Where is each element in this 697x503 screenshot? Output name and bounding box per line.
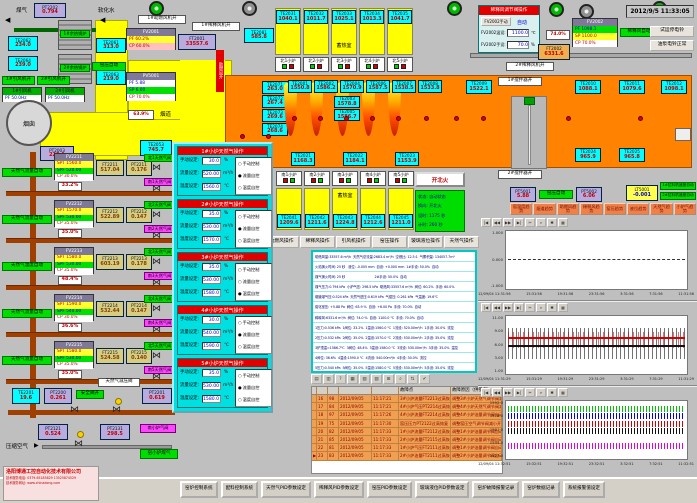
temp-set-label: 温度设定: (180, 397, 199, 401)
flow-set-input[interactable]: 530.00 (202, 276, 221, 284)
ytick: 6.00 (495, 342, 503, 347)
loop-mode-label: 天然气流量自动 (2, 356, 52, 365)
pv5001-box: PV5001 PF 5.88 SP 6.00 CP 70.0% (126, 72, 176, 101)
unit-label: % (531, 42, 535, 47)
burner-status[interactable]: 南4小炉 (360, 171, 386, 186)
alarm-row[interactable]: ▶23 832012/09/05 11:17:332#小炉油量FT2111过高恢… (312, 452, 502, 460)
valve-icon[interactable]: ⋈ (74, 440, 83, 449)
ops-button[interactable]: 窑压操作 (372, 236, 407, 248)
thermo-dot (454, 116, 459, 121)
boiler-1-label: 1#余热锅炉 (60, 30, 90, 38)
xtick: 19:31:56 (557, 292, 573, 296)
chart-toolbar-icon[interactable]: ▶| (514, 388, 524, 397)
alarm-table-rows: 16 982012/09/05 11:17:213#小炉流量FT2213过高恢复… (311, 395, 503, 462)
thermo-dot (566, 116, 571, 121)
chart-toolbar-icon[interactable]: ⌕ (536, 218, 546, 227)
flow-set-input[interactable]: 520.00 (202, 170, 221, 178)
hand-set-input[interactable]: 70.0 (507, 41, 529, 49)
radio-flow[interactable]: ●流量自控 (238, 227, 271, 231)
radio-temp[interactable]: ○温度自控 (238, 345, 271, 349)
alarm-row[interactable]: 20 822012/09/05 11:17:331#小炉流量FT2112过高恢复… (312, 428, 502, 436)
trend-button[interactable]: 烟道趋势 (533, 203, 555, 215)
toolbar-icon[interactable]: ▧ (359, 374, 370, 384)
data-row: 煤气压力:0.794 kPa 小炉气压: 298.5 kPa 助燃风:33557… (313, 282, 475, 292)
fan-icon (549, 2, 564, 17)
chart2-xticks: 12/09/04 11:31:2915:31:2919:31:2923:31:2… (478, 377, 694, 381)
loop-ft-box: FT2213603.19 (96, 254, 124, 270)
loop-pt-box: PT22150.140 (126, 348, 152, 364)
manual-set-label: 手动设定: (180, 318, 199, 322)
flow-arrow-icon: ◀ (100, 16, 105, 24)
nav-button[interactable]: 窑压PID参数设定 (367, 481, 412, 498)
te-box: TE20211168.3 (291, 152, 315, 166)
pt5002-box: PT50026.06 (576, 187, 602, 202)
valve-icon[interactable]: ⋈ (152, 211, 161, 220)
chart-toolbar-icon[interactable]: |◀ (481, 303, 491, 312)
top-te-row: TE20011550.8TE20021586.2TE20041570.9TE20… (288, 80, 442, 93)
chart-toolbar-icon[interactable]: ◀◀ (492, 218, 502, 227)
chart-toolbar-icon[interactable]: ◀◀ (492, 303, 502, 312)
process-data-panel: 助燃风量:33557.6 m³/h 天然气总流量:2683.4 m³/h 空燃比… (311, 250, 477, 373)
reversal-status-panel: 状态: 自动状态换向: 开北火设时: 1175 秒计时: 260 秒 (415, 190, 465, 232)
kiln-auto-label: 窑压自动 (539, 190, 573, 199)
pt2121-box: PT21210.524 (38, 424, 68, 440)
burner-status[interactable]: 北5小炉 (387, 57, 413, 72)
flow-set-label: 流量设定: (180, 331, 199, 335)
valve-icon[interactable]: ⋈ (112, 406, 121, 415)
valve-icon[interactable]: ⋈ (152, 185, 161, 194)
temp-set-label: 温度设定: (180, 344, 199, 348)
loop-pipe (6, 332, 172, 337)
chart3-band-green (508, 406, 685, 412)
data-row: 5压力:0.540 kPa 5阀位: 35.0% 5温设:1580.0 ℃ 5流… (313, 363, 475, 373)
toolbar-icon[interactable]: ▦ (347, 374, 358, 384)
chart-toolbar-icon[interactable]: |◀ (481, 218, 491, 227)
te2201-box: TE220119.6 (12, 388, 40, 404)
valve-icon[interactable]: ⋈ (152, 258, 161, 267)
burner-gas-panel: 1#小炉天然气操作 手动设定: 30.0 % 流量设定: 520.00 m³/h… (177, 146, 268, 196)
te2009-box: TE20091522.1 (466, 80, 492, 94)
chart2-toolbar: |◀◀◀▶▶▶|✂⌕✱▦ (481, 303, 568, 312)
loop-pt-box: PT22140.147 (126, 301, 152, 317)
data-row: 2压力:0.532 kPa 2阀位: 35.0% 2温设:1570.0 ℃ 2流… (313, 333, 475, 343)
south-burner-row: 南1小炉 南2小炉 南3小炉 南4小炉 南5小炉 (276, 171, 414, 186)
unit-label: ℃ (224, 397, 229, 401)
fv2002-manual-button[interactable]: FV2002手动 (481, 17, 511, 26)
loop-north-valve-label: 北4天然气阀 (144, 295, 175, 303)
ytick: 11.00 (492, 315, 503, 320)
toolbar-icon[interactable]: ⇅ (407, 374, 418, 384)
gas-loop: 天然气流量自动 FV2212 SPT 1570.0 SPF 530.00 CP … (0, 199, 175, 246)
ytick: 1578.0 (490, 413, 503, 418)
alarm-row[interactable]: 17 842012/09/05 11:17:214#小炉气压PT2214过高恢复… (312, 403, 502, 411)
panel-title: 5#小炉天然气操作 (178, 359, 267, 367)
te2081-box: TE2081585.8 (244, 28, 274, 43)
separator (478, 300, 697, 302)
xtick: 7:32:51 (649, 462, 663, 466)
ytick: 3.00 (495, 355, 503, 360)
xtick: 15:31:29 (526, 377, 542, 381)
chart3-plot (505, 400, 688, 460)
chart1-toolbar: |◀◀◀▶▶▶|✂⌕✱▦ (481, 218, 568, 227)
chart-toolbar-icon[interactable]: ▶▶ (503, 218, 513, 227)
alarm-table-filler (311, 461, 503, 474)
trend-button[interactable]: 天然气趋势 (650, 203, 672, 215)
trend-button[interactable]: 液位趋势 (627, 203, 649, 215)
chart-toolbar-icon[interactable]: ◀◀ (492, 388, 502, 397)
loop-valve-pos: 35.0% (58, 229, 82, 238)
xtick: 3:31:56 (620, 292, 634, 296)
radio-manual[interactable]: ○手动控制 (238, 268, 271, 272)
radio-flow[interactable]: ○流量自控 (238, 280, 271, 284)
flow-set-label: 流量设定: (180, 172, 199, 176)
toolbar-icon[interactable]: ? (335, 374, 346, 384)
trend-button[interactable]: 稀释风趋势 (580, 203, 602, 215)
burner-status[interactable]: 北4小炉 (359, 57, 385, 72)
valve-icon[interactable]: ⋈ (152, 373, 161, 382)
trend-button[interactable]: 小炉气趋势 (674, 203, 696, 215)
valve-icon[interactable]: ⋈ (152, 164, 161, 173)
burner-gas-panel: 4#小炉天然气操作 手动设定: 30.0 % 流量设定: 540.00 m³/h… (177, 305, 268, 355)
alarm-toolbar: ▤▥?▦▧▨⊞⌕⇅✔ (311, 374, 430, 384)
nav-button[interactable]: 窑炉数据记录 (522, 481, 560, 498)
temp-set-input[interactable]: 1580.0 (202, 289, 221, 297)
ytick: 9.00 (495, 328, 503, 333)
unit-label: % (224, 212, 228, 216)
data-row: 稀释风:6331.6 m³/h 阀位: 74.0 % 自设: 1100.0 ℃ … (313, 313, 475, 323)
dilution1-on-label: 1#稀释风机开 (192, 22, 240, 31)
te2010-box: TE20101088.1 (575, 80, 601, 94)
burner-gas-popup[interactable]: 1#小炉天然气操作 手动设定: 30.0 % 流量设定: 520.00 m³/h… (172, 142, 273, 413)
toolbar-icon[interactable]: ⌕ (395, 374, 406, 384)
xtick: 15:31:56 (526, 292, 542, 296)
pump-bell-button[interactable]: 油泵电铃正常 (650, 40, 694, 51)
te2061-box: TE2061313.0 (96, 38, 126, 53)
chart1-plot (505, 230, 688, 290)
valve-icon[interactable]: ⋈ (152, 232, 161, 241)
burner-status[interactable]: 南5小炉 (388, 171, 414, 186)
data-row: 烟道煤气压:0.524 kPa 天然气进压:0.619 kPa 气窑压: 0.2… (313, 292, 475, 302)
loop-pipe (6, 285, 172, 290)
xtick: 7:31:56 (649, 292, 663, 296)
temp-set-input[interactable]: 1570.0 (202, 236, 221, 244)
panel-title: 1#小炉天然气操作 (178, 147, 267, 155)
unit-label: m³/h (223, 384, 233, 388)
idfan1-on-label: 1#引风机开 (2, 76, 35, 85)
loop-ft-box: FT2211517.04 (96, 160, 124, 176)
radio-flow[interactable]: ●流量自控 (238, 333, 271, 337)
te2012-box: TE20121098.1 (661, 80, 687, 94)
bottom-buttons-row: 窑炉控制系统配料控制系统天然气PID参数设定稀释风PID参数设定窑压PID参数设… (180, 481, 605, 498)
valve-icon[interactable]: ⋈ (70, 406, 79, 415)
idfan1-box: 1#引风机 PF 50.0Hz (2, 87, 42, 102)
nav-button[interactable]: 天然气PID参数设定 (261, 481, 311, 498)
te-box: TE20221184.1 (343, 152, 367, 166)
chart-toolbar-icon[interactable]: ✱ (547, 218, 557, 227)
south-small-gas-label: 南小炉气阀 (140, 424, 176, 433)
nav-button[interactable]: 配料控制系统 (221, 481, 259, 498)
loop-mode-label: 天然气流量自动 (2, 215, 52, 224)
te-box: TE20011550.8 (288, 80, 312, 93)
burner-status[interactable]: 北1小炉 (275, 57, 301, 72)
temp-set-label: 温度设定: (180, 185, 199, 189)
status-line: 计时: 260 秒 (418, 223, 462, 227)
chart-toolbar-icon[interactable]: ⌕ (536, 388, 546, 397)
loop-valve-pos: 35.0% (58, 370, 82, 379)
temp-set-input[interactable]: 1560.0 (202, 183, 221, 191)
data-row: 4阀位: 36.6% 4温设:1590.0 ℃ 4流设: 540.00m³/h … (313, 353, 475, 363)
manual-set-label: 手动设定: (180, 159, 199, 163)
chart-toolbar-icon[interactable]: ⌕ (536, 303, 546, 312)
flow-set-input[interactable]: 530.00 (202, 223, 221, 231)
xtick: 11:32:51 (678, 462, 694, 466)
pt5001-box: PT50015.88 (510, 187, 536, 202)
loop-pid-box: FV2211 SPT 1560.0 SPF 520.00 CP 30.0% (54, 153, 94, 180)
loop-ft-box: FT2212522.89 (96, 207, 124, 223)
flow-set-input[interactable]: 530.00 (202, 382, 221, 390)
thermo-dot (344, 116, 349, 121)
loop-mode-label: 天然气流量自动 (2, 309, 52, 318)
panel-title: 3#小炉天然气操作 (178, 253, 267, 261)
fire-direction-button[interactable]: 开北火 (415, 172, 465, 187)
data-row: 火焰换火时间: 25 秒 液位: -0.005 mm 自设: +0.000 mm… (313, 262, 475, 272)
loop-pipe (6, 191, 172, 196)
chart-toolbar-icon[interactable]: ▦ (558, 388, 568, 397)
puller1-auto-label: 1#拉料机速度自动 (660, 182, 696, 190)
loop-pt-box: PT22130.178 (126, 254, 152, 270)
nav-button[interactable]: 系统报警值设定 (563, 481, 605, 498)
alarm-row[interactable]: 19 752012/09/05 11:17:30窑压压力PT2122过高恢复 调… (312, 420, 502, 428)
xtick: 11:31:56 (678, 292, 694, 296)
regen-label-north: 蓄热室 (275, 42, 413, 49)
ytick: -1.000 (491, 283, 503, 288)
manual-set-input[interactable]: 30.0 (202, 157, 221, 165)
burner-status[interactable]: 北3小炉 (331, 57, 357, 72)
chart-toolbar-icon[interactable]: ▦ (558, 218, 568, 227)
chart-toolbar-icon[interactable]: ✱ (547, 303, 557, 312)
manual-set-label: 手动设定: (180, 265, 199, 269)
burner-status[interactable]: 北2小炉 (303, 57, 329, 72)
gas-reducer-label: 天然气减压阀 (98, 378, 140, 387)
gas-loop: 天然气流量自动 FV2214 SPT 1590.0 SPF 540.00 CP … (0, 293, 175, 340)
data-row: 煤气换火时间: 25 秒 2#手设: 50.0% 自动 (313, 272, 475, 282)
idfan2-on-label: 2#引风机开 (37, 76, 70, 85)
loop-valve-pos: 33.2% (58, 182, 82, 191)
alarm-row[interactable]: 21 852012/09/05 11:17:332#小炉流量FT2115过高恢复… (312, 436, 502, 444)
te-box: TE20031578.8 (334, 96, 360, 108)
control-mode-radios: ○手动控制 ●流量自控 ○温度自控 (235, 369, 272, 407)
burner-status[interactable]: 南1小炉 (276, 171, 302, 186)
loop-north-valve-label: 北2天然气阀 (144, 201, 175, 209)
dilution-fan2-on-label: 2#稀释风机开 (506, 62, 554, 71)
loop-valve-pos: 36.6% (58, 323, 82, 332)
chart-toolbar-icon[interactable]: ▶| (514, 218, 524, 227)
burner-status[interactable]: 南2小炉 (304, 171, 330, 186)
loop-pt-box: PT22110.176 (126, 160, 152, 176)
radio-temp[interactable]: ○温度自控 (238, 186, 271, 190)
chart-toolbar-icon[interactable]: ▶▶ (503, 388, 513, 397)
data-row: 助燃风量:33557.6 m³/h 天然气总流量:2683.4 m³/h 空燃比… (313, 252, 475, 262)
control-mode-radios: ○手动控制 ●流量自控 ○温度自控 (235, 157, 272, 195)
toolbar-icon[interactable]: ▥ (323, 374, 334, 384)
chart3-band-black (508, 428, 685, 434)
alarm-row[interactable]: 16 982012/09/05 11:17:213#小炉流量FT2213过高恢复… (312, 395, 502, 403)
te-box: TE20081533.8 (418, 80, 442, 93)
blower-open-bar: 助燃风开 (216, 50, 224, 92)
ops-button[interactable]: 稀释风操作 (300, 236, 335, 248)
valve-icon[interactable]: ⋈ (152, 279, 161, 288)
kiln-pressure-auto-label: 窑压自动 (92, 62, 126, 71)
flow-set-input[interactable]: 540.00 (202, 329, 221, 337)
chart2-line-black (508, 345, 685, 347)
furnace-body: TE2071263.0TE2072267.4TE2073269.6TE20742… (225, 75, 692, 168)
pt2200-box: PT22000.261 (44, 388, 72, 404)
flow-set-label: 流量设定: (180, 384, 199, 388)
ops-button[interactable]: 玻璃液位操作 (408, 236, 443, 248)
status-line: 设时: 1175 秒 (418, 214, 462, 218)
chart-toolbar-icon[interactable]: ✂ (525, 218, 535, 227)
radio-flow[interactable]: ●流量自控 (238, 386, 271, 390)
toolbar-icon[interactable]: ▨ (371, 374, 382, 384)
ops-button[interactable]: 天然气操作 (444, 236, 479, 248)
temp-set-input[interactable]: 1580.0 (202, 395, 221, 403)
chart3-band-magenta (508, 443, 685, 449)
stirrer2-on-label: 2#搅拌器开 (498, 170, 542, 179)
radio-manual[interactable]: ○手动控制 (238, 162, 271, 166)
trend-button[interactable]: 窑压趋势 (604, 203, 626, 215)
te-box: TE20071538.5 (392, 80, 416, 93)
thermo-dot (292, 116, 297, 121)
valve-icon[interactable]: ⋈ (152, 352, 161, 361)
radio-manual[interactable]: ○手动控制 (238, 215, 271, 219)
radio-temp[interactable]: ○温度自控 (238, 239, 271, 243)
loop-pid-box: FV2212 SPT 1570.0 SPF 530.00 CP 35.0% (54, 200, 94, 227)
te-box: TE20021586.2 (314, 80, 338, 93)
chart-toolbar-icon[interactable]: ▶| (514, 303, 524, 312)
regen-label-south: 蓄热室 (276, 192, 414, 199)
chart-toolbar-icon[interactable]: ✂ (525, 388, 535, 397)
chart-toolbar-icon[interactable]: |◀ (481, 388, 491, 397)
north-burner-row: 北1小炉 北2小炉 北3小炉 北4小炉 北5小炉 (275, 57, 413, 72)
actuator-icon (77, 431, 84, 438)
xtick: 19:31:29 (557, 377, 573, 381)
coal-gas-label: 煤气 (16, 6, 27, 14)
xtick: 3:32:51 (620, 462, 634, 466)
chart3-band-blue (508, 413, 685, 419)
chart-toolbar-icon[interactable]: ▦ (558, 303, 568, 312)
company-web: 技术服务网址: www.chinadong.com (6, 481, 96, 486)
data-row: 熔化室压: +5.88 Pa 阀位: 63.9 % 自设: +6.00 Pa 手… (313, 302, 475, 312)
xtick: 23:31:56 (589, 292, 605, 296)
thermo-dot (424, 116, 429, 121)
xtick: 23:31:29 (589, 377, 605, 381)
burner-gas-panel: 5#小炉天然气操作 手动设定: 35.0 % 流量设定: 530.00 m³/h… (177, 358, 268, 408)
radio-temp[interactable]: ○温度自控 (238, 398, 271, 402)
ft2002-box: FT20026331.6 (538, 44, 570, 60)
valve-icon[interactable]: ⋈ (152, 326, 161, 335)
chart3-yticks: 1592.01578.01561.01544.01527.0 (481, 400, 503, 458)
toolbar-icon[interactable]: ▤ (311, 374, 322, 384)
unit-label: % (224, 318, 228, 322)
radio-manual[interactable]: ○手动控制 (238, 321, 271, 325)
alarm-row[interactable]: 18 972012/09/05 11:17:264#小炉流量FT2214过高恢复… (312, 411, 502, 419)
scada-screen: 煤气 ◀ PT22020.794 软化水 ◀ 1#余热锅炉 2#余热锅炉 TE2… (0, 0, 697, 503)
nav-button[interactable]: 窑炉故障报警记录 (472, 481, 519, 498)
unit-label: m³/h (223, 172, 233, 176)
actuator-icon (115, 398, 122, 405)
valve-icon[interactable]: ⋈ (152, 305, 161, 314)
chart3-toolbar: |◀◀◀▶▶▶|✂⌕✱▦ (481, 388, 568, 397)
stirrer-channel (511, 96, 547, 169)
compressed-air-label: 压缩空气 (6, 442, 28, 450)
xtick: 23:32:51 (589, 462, 605, 466)
boiler-2-label: 2#余热锅炉 (60, 64, 90, 72)
chart3-xticks: 12/09/04 11:32:5115:32:5119:32:5123:32:5… (478, 462, 694, 466)
nav-button[interactable]: 玻璃液位PID参数设定 (415, 481, 469, 498)
radio-manual[interactable]: ○手动控制 (238, 374, 271, 378)
unit-label: ℃ (224, 238, 229, 242)
chart-toolbar-icon[interactable]: ✂ (525, 303, 535, 312)
manual-set-input[interactable]: 35.0 (202, 263, 221, 271)
chart-toolbar-icon[interactable]: ✱ (547, 388, 557, 397)
loop-north-valve-label: 北5天然气阀 (144, 342, 175, 350)
nav-button[interactable]: 窑炉控制系统 (180, 481, 218, 498)
control-mode-radios: ○手动控制 ●流量自控 ○温度自控 (235, 210, 272, 248)
company-name: 洛阳博通工控自动化技术有限公司 (6, 469, 96, 476)
trend-button[interactable]: 助燃风趋势 (557, 203, 579, 215)
thermo-dot (370, 116, 375, 121)
manual-set-label: 手动设定: (180, 371, 199, 375)
radio-temp[interactable]: ●温度自控 (238, 292, 271, 296)
trend-button[interactable]: 窑温度趋势 (510, 203, 532, 215)
soft-water-label: 软化水 (98, 6, 115, 14)
radio-flow[interactable]: ●流量自控 (238, 174, 271, 178)
lt5001-box: LT5001-0.001 (626, 185, 658, 201)
manual-set-label: 手动设定: (180, 212, 199, 216)
gas-pipe (8, 410, 175, 415)
ytick: 1592.0 (490, 400, 503, 405)
toolbar-icon[interactable]: ⊞ (383, 374, 394, 384)
temp-set-input[interactable]: 1100.0 (507, 29, 529, 37)
temp-set-input[interactable]: 1590.0 (202, 342, 221, 350)
manual-set-input[interactable]: 30.0 (202, 316, 221, 324)
fan-icon (447, 1, 462, 16)
chart3-band-red (508, 421, 685, 427)
temp-set-label: FV2002温设: (481, 30, 506, 36)
chart-toolbar-icon[interactable]: ▶▶ (503, 303, 513, 312)
ops-button[interactable]: 引风机操作 (336, 236, 371, 248)
loop-pid-box: FV2214 SPT 1590.0 SPF 540.00 CP 30.0% (54, 294, 94, 321)
thermo-dot (240, 134, 245, 139)
unit-label: % (224, 265, 228, 269)
nav-button[interactable]: 稀释风PID参数设定 (314, 481, 364, 498)
temp-set-label: 温度设定: (180, 238, 199, 242)
unit-label: ℃ (531, 30, 536, 35)
burner-status[interactable]: 南3小炉 (332, 171, 358, 186)
chart1-yticks: 1.0000.000-1.000 (481, 230, 503, 288)
manual-set-input[interactable]: 35.0 (202, 369, 221, 377)
test-bell-button[interactable]: 试运停电铃 (650, 26, 694, 37)
hand-set-label: FV2002手设: (481, 42, 506, 48)
alarm-row[interactable]: 22 812012/09/05 11:17:331#小炉气压FT2111过高恢复… (312, 444, 502, 452)
loop-ft-box: FT2215524.58 (96, 348, 124, 364)
safety-valve-label: 安全阀开 (76, 390, 104, 399)
status-line: 状态: 自动状态 (418, 195, 462, 199)
te-box: TE20041570.9 (340, 80, 364, 93)
idfan2-box: 2#引风机 PF 50.0Hz (45, 87, 85, 102)
manual-set-input[interactable]: 35.0 (202, 210, 221, 218)
toolbar-icon[interactable]: ✔ (419, 374, 430, 384)
